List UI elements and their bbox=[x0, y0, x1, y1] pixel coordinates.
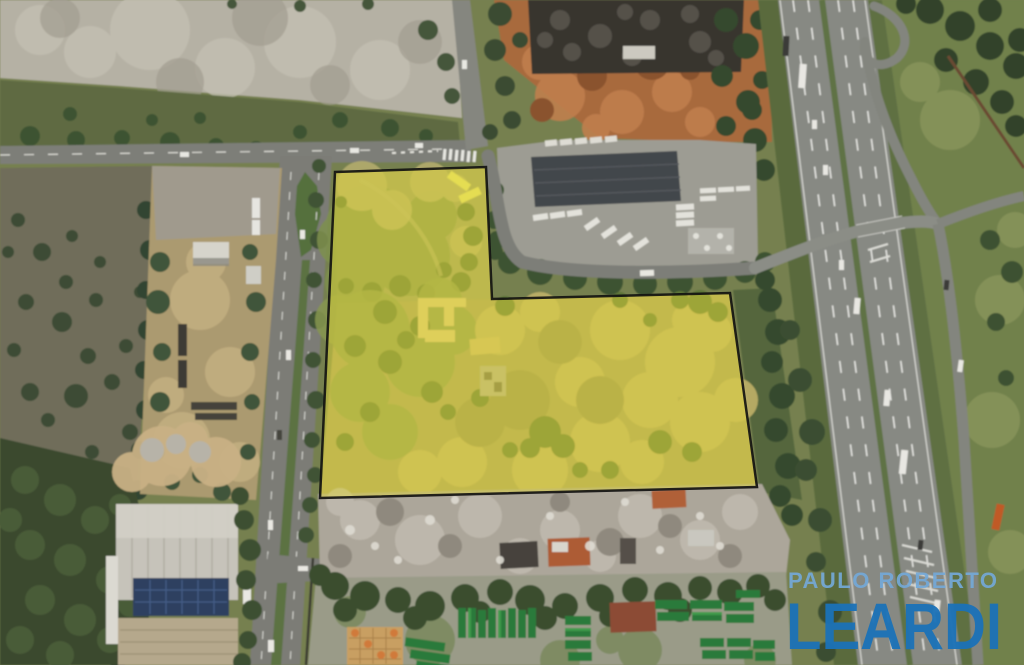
yard-shed-shadow bbox=[193, 258, 229, 266]
avenue-vehicle-dark bbox=[277, 430, 282, 440]
warehouse-solar bbox=[133, 578, 229, 616]
ring-road-truck bbox=[640, 270, 654, 276]
yard-white-trailers bbox=[252, 198, 260, 235]
warehouse-annex bbox=[106, 556, 118, 644]
depot-warehouse bbox=[531, 151, 681, 207]
scrap-roof-orange bbox=[652, 489, 687, 509]
scrap-structures bbox=[620, 538, 636, 564]
yard-dark-trailers bbox=[178, 324, 187, 388]
watermark: PAULO ROBERTO LEARDI bbox=[786, 568, 1002, 663]
warehouse-sw-top bbox=[116, 504, 238, 538]
substation-building bbox=[623, 46, 655, 59]
scrap-white-bldg bbox=[688, 530, 714, 546]
west-yard-gravel bbox=[152, 166, 280, 240]
scrap-shed-dark bbox=[499, 541, 538, 569]
yard-office bbox=[246, 266, 261, 284]
container-shed bbox=[609, 601, 656, 633]
aerial-photo-stage: PAULO ROBERTO LEARDI bbox=[0, 0, 1024, 665]
satellite-map: PAULO ROBERTO LEARDI bbox=[0, 0, 1024, 665]
scrap-shed-orange-white bbox=[552, 542, 568, 552]
watermark-line2: LEARDI bbox=[786, 589, 1002, 663]
